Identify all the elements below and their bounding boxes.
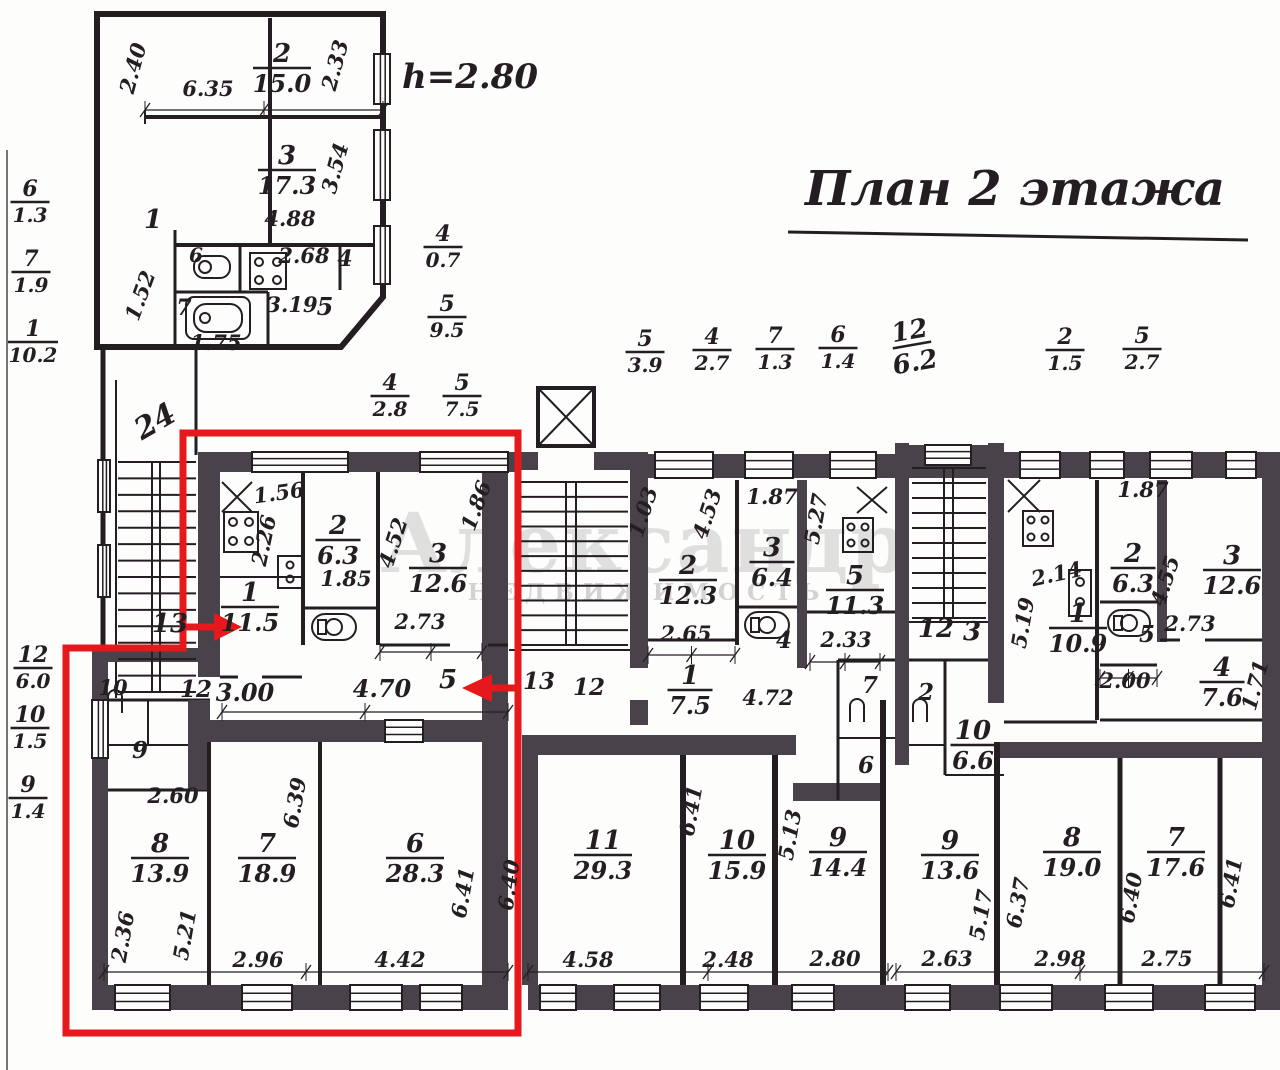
svg-text:9: 9 (20, 772, 35, 798)
dimension-label: 12 (180, 676, 212, 703)
dimension-label: 4 (776, 627, 792, 654)
dimension-label: 3.19 (266, 292, 318, 317)
room-number-area-label: 819.0 (1043, 823, 1102, 882)
window-icon (745, 452, 793, 478)
svg-text:6.6: 6.6 (952, 746, 994, 775)
stat-fraction-label: 61.3 (11, 176, 50, 227)
dimension-label: 13 (152, 609, 188, 639)
window-icon (385, 720, 423, 742)
dimension-label: 2.14 (1028, 556, 1084, 591)
svg-text:17.3: 17.3 (258, 171, 316, 200)
dimension-label: 5.19 (1006, 595, 1040, 650)
window-icon (1150, 452, 1192, 478)
svg-text:1.5: 1.5 (1048, 351, 1083, 375)
dimension-label: 2.96 (231, 947, 284, 972)
svg-text:1: 1 (25, 316, 40, 342)
dimension-line (805, 653, 885, 671)
room-number-area-label: 717.6 (1147, 823, 1206, 882)
svg-text:4: 4 (1213, 653, 1231, 683)
plan-title-text: План 2 этажа (803, 161, 1225, 217)
stat-fraction-label: 126.0 (14, 642, 53, 693)
stat-fraction-label: 21.5 (1046, 324, 1085, 375)
svg-text:10.9: 10.9 (1049, 629, 1108, 658)
dimension-label: 2.98 (1033, 946, 1086, 971)
stat-fraction-label: 52.7 (1123, 323, 1162, 374)
dimension-label: 7 (862, 672, 878, 699)
svg-text:9: 9 (829, 823, 847, 853)
dimension-label: 2.00 (1098, 668, 1151, 693)
dimension-label: 2.48 (701, 947, 754, 972)
dimension-line (99, 963, 513, 981)
dimension-label: 6 (189, 243, 203, 267)
svg-text:3: 3 (429, 539, 447, 569)
stat-fraction-label: 71.3 (756, 323, 795, 374)
window-icon (115, 985, 170, 1010)
dimension-label: 6.41 (446, 865, 480, 920)
svg-text:2: 2 (1056, 324, 1072, 350)
dimension-label: 24 (128, 396, 183, 448)
sink-icon (850, 699, 864, 722)
dimension-label: 2.63 (920, 946, 972, 971)
plan-title: План 2 этажа (788, 161, 1248, 240)
toilet-icon (312, 614, 356, 640)
dimension-label: 2 (917, 679, 934, 706)
stove-icon (1023, 511, 1053, 546)
dimension-label: 1.87 (1117, 477, 1169, 502)
dimension-label: 6.37 (1001, 875, 1035, 930)
dimension-label: 5 (439, 665, 457, 695)
dimension-label: 7 (176, 295, 192, 321)
svg-text:1.5: 1.5 (13, 729, 48, 753)
svg-text:10: 10 (15, 702, 46, 728)
svg-text:5: 5 (637, 326, 652, 352)
svg-text:2: 2 (328, 511, 347, 541)
dimension-label: 4.42 (374, 947, 425, 972)
stat-fraction-label: 40.7 (424, 221, 463, 272)
svg-text:2.7: 2.7 (694, 351, 730, 375)
stat-fraction-label: 101.5 (11, 702, 50, 753)
window-icon (905, 985, 950, 1010)
dimension-label: 6.41 (674, 783, 708, 838)
svg-text:6.0: 6.0 (16, 669, 51, 693)
dimension-label: 6 (858, 752, 874, 779)
window-icon (420, 452, 508, 472)
svg-text:12: 12 (18, 642, 49, 668)
dimension-label: 3.00 (216, 678, 275, 707)
svg-text:17.6: 17.6 (1147, 853, 1206, 882)
stat-fraction-label: 42.7 (693, 324, 732, 375)
svg-text:18.9: 18.9 (238, 859, 297, 888)
dimension-label: 10 (98, 675, 128, 700)
svg-text:6: 6 (406, 829, 424, 859)
svg-text:8: 8 (150, 829, 169, 859)
dimension-label: 2.68 (277, 243, 330, 268)
svg-text:1.4: 1.4 (821, 349, 856, 373)
svg-text:1.9: 1.9 (14, 273, 49, 297)
room-number-area-label: 17.5 (668, 661, 713, 720)
window-icon (374, 226, 390, 284)
dimension-label: 5.21 (168, 907, 202, 962)
svg-text:9.5: 9.5 (430, 318, 465, 342)
svg-text:7: 7 (258, 829, 276, 859)
window-icon (374, 130, 390, 200)
svg-text:3: 3 (1223, 541, 1241, 571)
dimension-label: 4.55 (1145, 552, 1185, 608)
window-icon (1205, 985, 1255, 1010)
dimension-label: 6.35 (182, 76, 233, 101)
svg-text:6.2: 6.2 (890, 344, 940, 381)
svg-text:12.3: 12.3 (659, 581, 717, 610)
svg-text:2: 2 (678, 551, 697, 581)
dimension-label: 2.80 (808, 946, 861, 971)
svg-text:15.9: 15.9 (708, 856, 767, 885)
svg-text:9: 9 (941, 826, 959, 856)
dimension-label: 2.73 (393, 609, 445, 634)
dimension-label: 2.73 (1163, 611, 1215, 636)
dimension-label: 6.39 (278, 775, 312, 830)
window-icon (830, 452, 876, 478)
svg-text:2.7: 2.7 (1124, 350, 1160, 374)
room-number-area-label: 312.6 (1203, 541, 1262, 600)
stat-fraction-label: 53.9 (626, 326, 665, 377)
dimension-label: 2.40 (114, 40, 152, 97)
svg-text:19.0: 19.0 (1043, 853, 1102, 882)
svg-text:2.8: 2.8 (372, 397, 408, 421)
dimension-label: 2.65 (659, 621, 711, 646)
window-icon (1226, 452, 1256, 478)
svg-text:28.3: 28.3 (385, 859, 444, 888)
dimension-label: 1.52 (119, 267, 160, 324)
dimension-label: 4 (337, 246, 352, 272)
corner-window-icon (222, 482, 252, 512)
dimension-label: 4.58 (562, 947, 614, 972)
dimension-label: 12 (918, 614, 954, 644)
stat-fraction-label: 59.5 (428, 291, 467, 342)
dimension-label: 9 (132, 737, 148, 764)
room-number-area-label: 914.4 (809, 823, 867, 882)
dimension-label: 2.36 (106, 909, 140, 965)
window-icon (1105, 985, 1153, 1010)
window-icon (1090, 452, 1124, 478)
dimension-label: 4.88 (264, 206, 316, 231)
window-icon (1020, 452, 1060, 478)
svg-text:14.4: 14.4 (809, 853, 867, 882)
room-number-area-label: 215.0 (253, 39, 312, 98)
stat-fraction-label: 57.5 (443, 370, 482, 421)
svg-text:13.6: 13.6 (921, 856, 980, 885)
svg-text:7: 7 (767, 323, 783, 349)
entrance-arrow-left (462, 674, 518, 702)
dimension-label: 13 (523, 668, 555, 695)
svg-text:5: 5 (454, 370, 469, 396)
stat-fraction-label: 110.2 (8, 316, 58, 367)
room-number-area-label: 1129.3 (573, 826, 632, 885)
svg-text:1: 1 (241, 578, 259, 608)
room-number-area-label: 1015.9 (708, 826, 767, 885)
svg-text:3.9: 3.9 (628, 353, 663, 377)
dimension-label: 5 (1139, 621, 1155, 648)
stat-fraction-label: 126.2 (885, 313, 940, 382)
window-icon (700, 985, 748, 1010)
staircase (912, 468, 986, 618)
floor-plan-drawing: Александр НЕДВИЖИМОСТЬ (0, 0, 1280, 1070)
cabinet-icon (278, 556, 302, 588)
dimension-label: 2.75 (1140, 946, 1192, 971)
dimension-label: 2.60 (146, 783, 199, 808)
svg-text:2: 2 (272, 39, 291, 69)
corner-window-icon (1008, 480, 1040, 512)
dimension-label: 3.54 (316, 140, 353, 196)
stat-fraction-label: 91.4 (9, 772, 48, 823)
svg-text:6.4: 6.4 (751, 563, 793, 592)
svg-text:12.6: 12.6 (409, 569, 468, 598)
dimension-label: 5.17 (964, 887, 998, 942)
window-icon (420, 985, 462, 1010)
window-icon (92, 700, 108, 758)
dimension-label: 1 (144, 205, 162, 235)
svg-text:5: 5 (846, 561, 864, 591)
svg-text:6: 6 (22, 176, 37, 202)
dimension-label: 2.33 (819, 627, 871, 652)
svg-text:29.3: 29.3 (573, 856, 632, 885)
window-icon (98, 460, 110, 512)
dimension-label: 4.72 (742, 685, 793, 710)
dimension-label: 1.85 (320, 566, 371, 591)
svg-text:1.3: 1.3 (13, 203, 48, 227)
window-icon (98, 545, 110, 597)
svg-text:10: 10 (719, 826, 755, 856)
svg-text:11.3: 11.3 (826, 591, 884, 620)
svg-text:1: 1 (1069, 599, 1087, 629)
svg-text:5: 5 (439, 291, 454, 317)
dimension-label: 12 (573, 674, 605, 701)
svg-text:6: 6 (830, 322, 845, 348)
height-note: h=2.80 (402, 57, 538, 97)
svg-text:11.5: 11.5 (221, 608, 279, 637)
dimension-label: 1.56 (252, 477, 307, 509)
dimension-label: 1.87 (746, 484, 798, 509)
svg-text:7: 7 (1167, 823, 1185, 853)
dimension-label: 3 (963, 617, 981, 647)
stat-fraction-label: 61.4 (819, 322, 858, 373)
window-icon (242, 985, 292, 1010)
svg-text:2: 2 (1123, 539, 1142, 569)
room-number-area-label: 628.3 (385, 829, 444, 888)
svg-text:1.4: 1.4 (11, 799, 46, 823)
room-number-area-label: 317.3 (258, 141, 316, 200)
svg-text:3: 3 (278, 141, 296, 171)
dimension-label: 4.70 (353, 674, 412, 703)
room-number-area-label: 26.3 (316, 511, 361, 570)
svg-text:10.2: 10.2 (9, 343, 58, 367)
window-icon (540, 985, 576, 1010)
window-icon (925, 445, 971, 465)
dimension-label: 2.26 (246, 512, 281, 569)
window-icon (792, 985, 834, 1010)
svg-text:13.9: 13.9 (131, 859, 190, 888)
svg-text:3: 3 (763, 533, 781, 563)
stat-fraction-label: 42.8 (371, 370, 410, 421)
window-icon (1000, 985, 1052, 1010)
dimension-label: 1.75 (190, 330, 241, 355)
room-number-area-label: 106.6 (951, 716, 996, 775)
svg-text:7.5: 7.5 (445, 397, 480, 421)
svg-text:4: 4 (435, 221, 450, 247)
svg-text:1.3: 1.3 (758, 350, 793, 374)
window-icon (614, 985, 660, 1010)
svg-text:1: 1 (681, 661, 699, 691)
room-number-area-label: 718.9 (238, 829, 297, 888)
window-icon (374, 54, 390, 104)
window-icon (655, 452, 713, 478)
window-icon (350, 985, 402, 1010)
svg-text:7: 7 (23, 246, 39, 272)
svg-text:4: 4 (382, 370, 397, 396)
svg-text:10: 10 (955, 716, 991, 746)
window-icon (252, 452, 348, 472)
svg-text:12.6: 12.6 (1203, 571, 1262, 600)
svg-text:5: 5 (1134, 323, 1149, 349)
floor-plan-sheet: Александр НЕДВИЖИМОСТЬ (0, 0, 1280, 1070)
dimension-label: 5 (317, 292, 334, 321)
svg-text:11: 11 (585, 826, 621, 856)
room-number-area-label: 111.5 (221, 578, 279, 637)
svg-text:15.0: 15.0 (253, 69, 312, 98)
svg-text:8: 8 (1062, 823, 1081, 853)
svg-text:4: 4 (704, 324, 719, 350)
dimension-label: 2.33 (316, 37, 354, 94)
svg-text:0.7: 0.7 (426, 248, 461, 272)
room-number-area-label: 813.9 (131, 829, 190, 888)
stat-fraction-label: 71.9 (12, 246, 51, 297)
svg-text:7.5: 7.5 (669, 691, 711, 720)
room-number-area-label: 913.6 (921, 826, 980, 885)
